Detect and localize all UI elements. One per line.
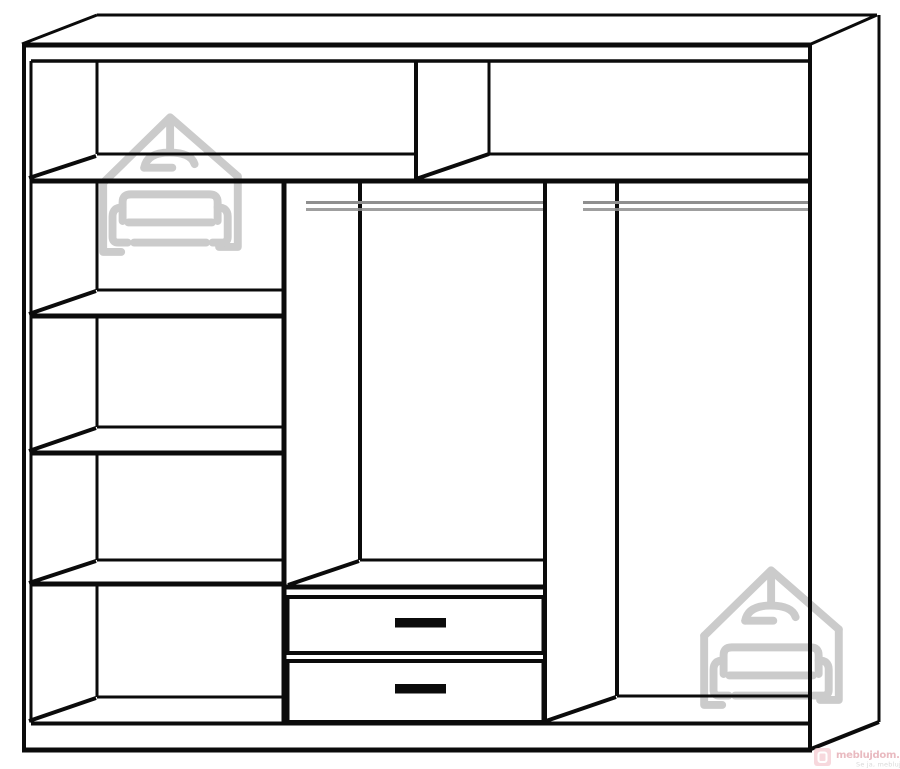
brand-logo: meblujdom.pl Se ja, mebluj dom!	[814, 748, 900, 769]
shelf-1-slant	[29, 291, 96, 314]
shelf-2-slant	[29, 428, 96, 451]
bottom-middle-slant	[546, 697, 616, 721]
drawer-unit	[288, 597, 544, 722]
brand-tagline-text: Se ja, mebluj dom!	[856, 761, 900, 769]
top-shelf-left-slant	[29, 156, 96, 178]
watermark-house-sofa-icon-bottom-right	[704, 570, 839, 705]
middle-right-divider	[545, 181, 617, 723]
brand-logo-badge	[814, 748, 831, 766]
drawer-1-handle	[395, 618, 446, 628]
shelf-3-slant	[29, 561, 96, 583]
bottom-left-slant	[29, 698, 96, 721]
middle-shelf	[286, 560, 545, 587]
bottom-right-slant	[811, 722, 879, 749]
wardrobe-technical-diagram: meblujdom.pl Se ja, mebluj dom!	[0, 0, 900, 769]
hanging-rail-middle	[306, 203, 543, 210]
middle-shelf-slant	[288, 561, 359, 585]
top-divider-slant	[416, 154, 489, 179]
watermark-house-sofa-icon-top-left	[103, 117, 238, 252]
drawer-2-handle	[395, 684, 446, 694]
top-left-slant	[22, 15, 97, 44]
brand-logo-text: meblujdom.pl	[836, 750, 900, 761]
top-right-slant	[811, 15, 877, 44]
